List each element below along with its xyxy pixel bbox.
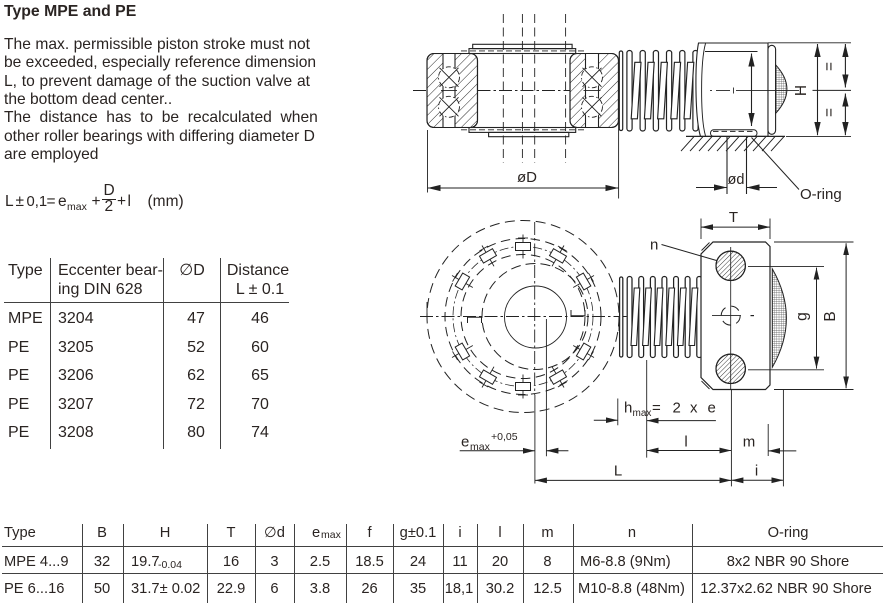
svg-text:øD: øD [517,169,537,186]
svg-text:=: = [821,62,838,71]
svg-text:x: x [690,399,698,416]
svg-text:H: H [793,85,810,96]
svg-text:i: i [755,462,758,479]
svg-text:n: n [650,237,658,254]
svg-text:T: T [729,209,738,226]
svg-text:max: max [633,408,652,419]
svg-text:=: = [652,399,661,416]
svg-text:g: g [794,312,811,321]
svg-text:=: = [821,108,838,117]
svg-text:B: B [822,311,839,321]
svg-text:L: L [614,462,622,479]
svg-text:l: l [684,433,687,450]
svg-text:2: 2 [673,399,681,416]
svg-text:e: e [708,399,716,416]
svg-text:h: h [624,399,632,416]
svg-text:O-ring: O-ring [800,186,842,203]
svg-text:+0,05: +0,05 [491,431,518,443]
svg-text:ød: ød [728,172,745,188]
svg-text:e: e [461,434,469,451]
svg-text:m: m [743,433,756,450]
